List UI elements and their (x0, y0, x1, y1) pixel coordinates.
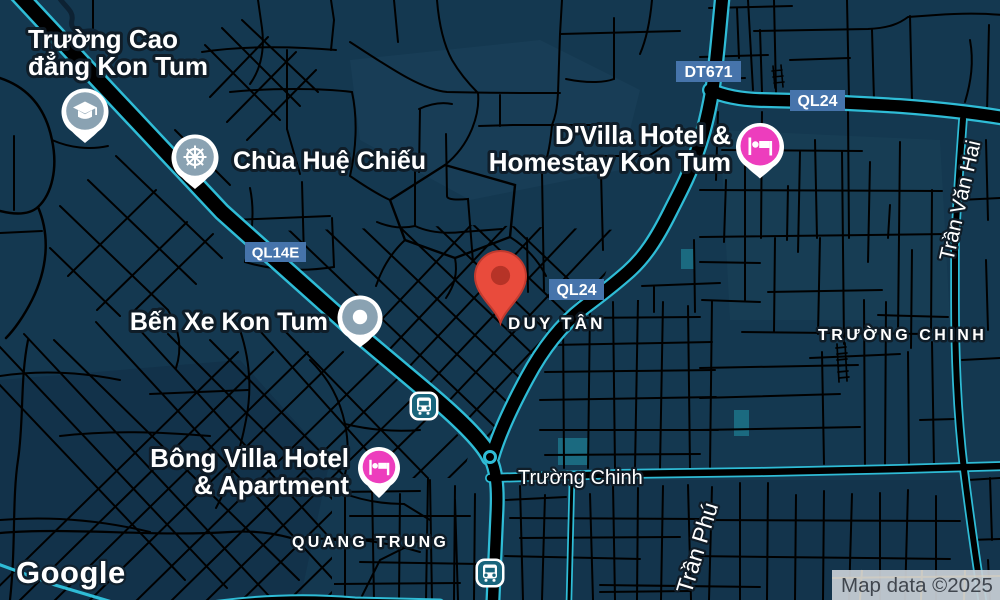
svg-text:đẳng Kon Tum: đẳng Kon Tum (28, 50, 208, 81)
svg-text:Trường Cao: Trường Cao (28, 24, 178, 54)
svg-text:Map data ©2025: Map data ©2025 (841, 574, 993, 597)
svg-text:QL24: QL24 (556, 282, 596, 299)
svg-text:Homestay Kon Tum: Homestay Kon Tum (489, 147, 731, 177)
svg-text:Trường Chinh: Trường Chinh (518, 467, 643, 489)
svg-text:Chùa Huệ Chiếu: Chùa Huệ Chiếu (233, 147, 426, 175)
svg-text:QL14E: QL14E (252, 245, 300, 262)
svg-text:DUY TÂN: DUY TÂN (508, 314, 606, 333)
svg-text:D'Villa Hotel &: D'Villa Hotel & (555, 120, 731, 150)
svg-text:QL24: QL24 (797, 93, 837, 110)
svg-text:QUANG TRUNG: QUANG TRUNG (292, 534, 449, 551)
svg-text:Bông Villa Hotel: Bông Villa Hotel (150, 443, 349, 473)
svg-text:Google: Google (16, 555, 126, 590)
svg-text:& Apartment: & Apartment (194, 470, 349, 500)
svg-text:DT671: DT671 (684, 64, 732, 81)
svg-text:TRƯỜNG CHINH: TRƯỜNG CHINH (818, 325, 987, 344)
svg-text:Bến Xe Kon Tum: Bến Xe Kon Tum (130, 308, 328, 336)
